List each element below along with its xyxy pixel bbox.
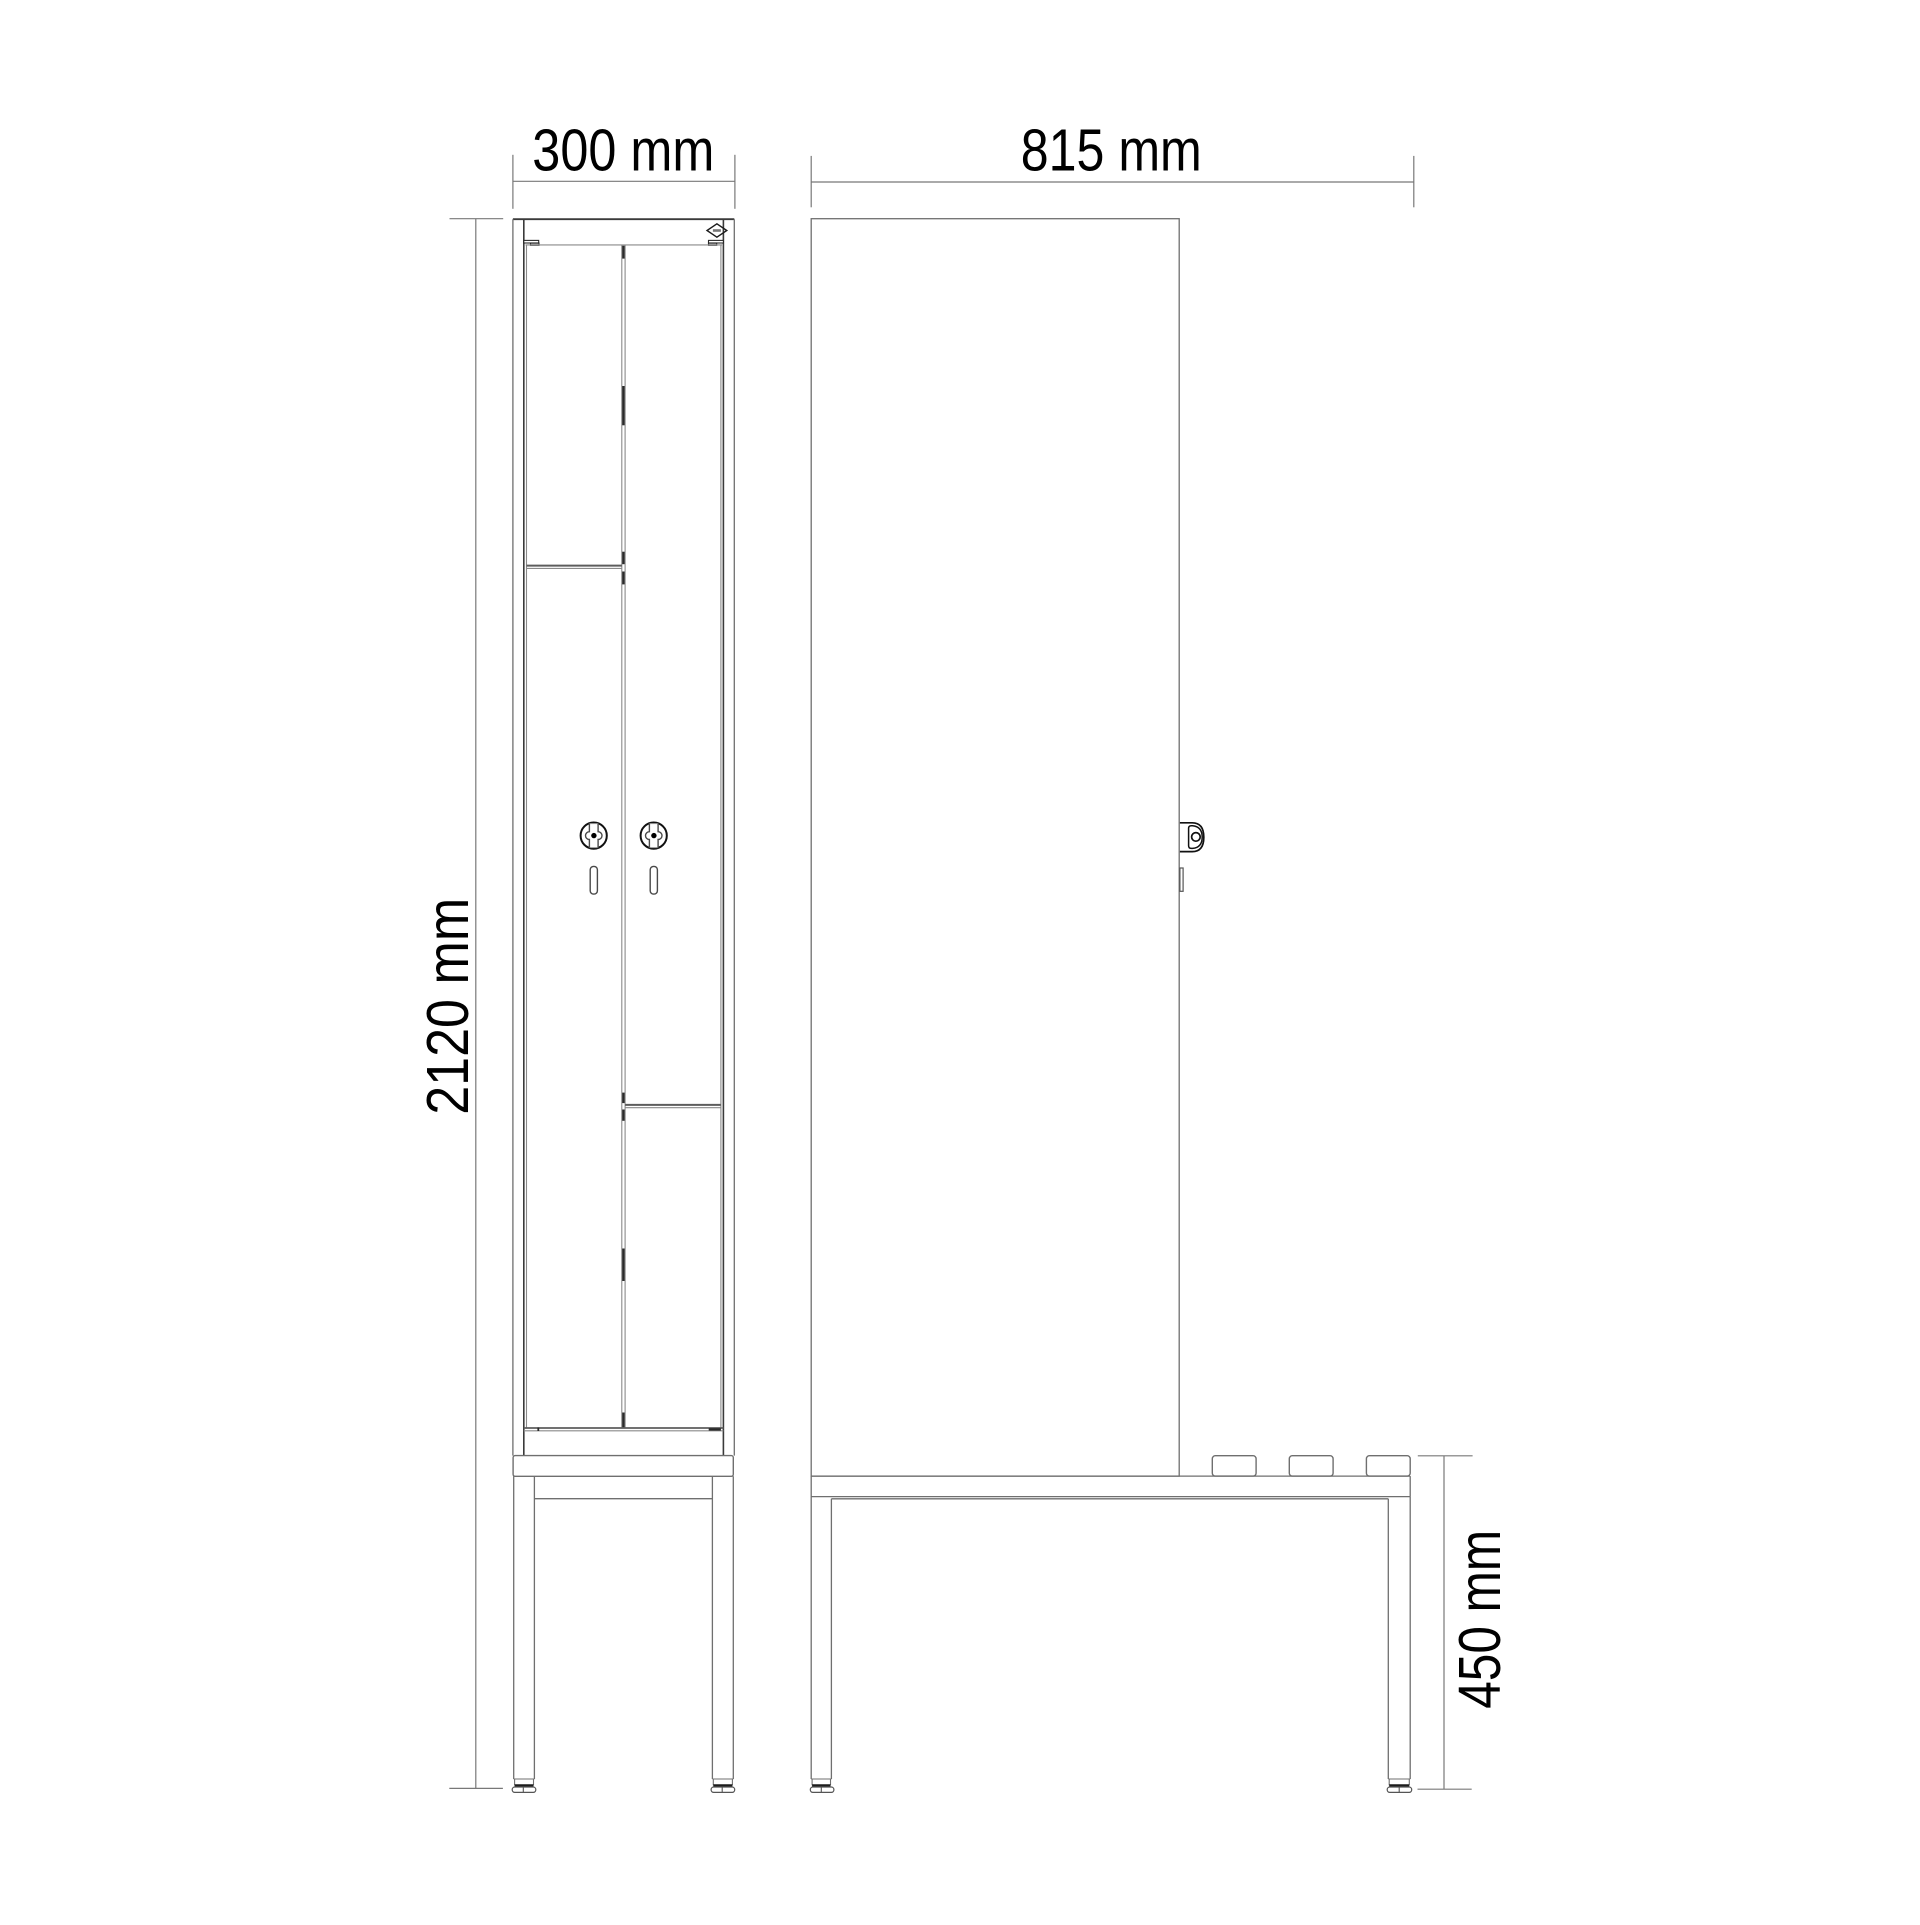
svg-text:2120 mm: 2120 mm — [414, 898, 481, 1115]
svg-text:815 mm: 815 mm — [1021, 116, 1202, 183]
svg-text:450 mm: 450 mm — [1446, 1530, 1513, 1709]
svg-text:300 mm: 300 mm — [532, 116, 714, 183]
